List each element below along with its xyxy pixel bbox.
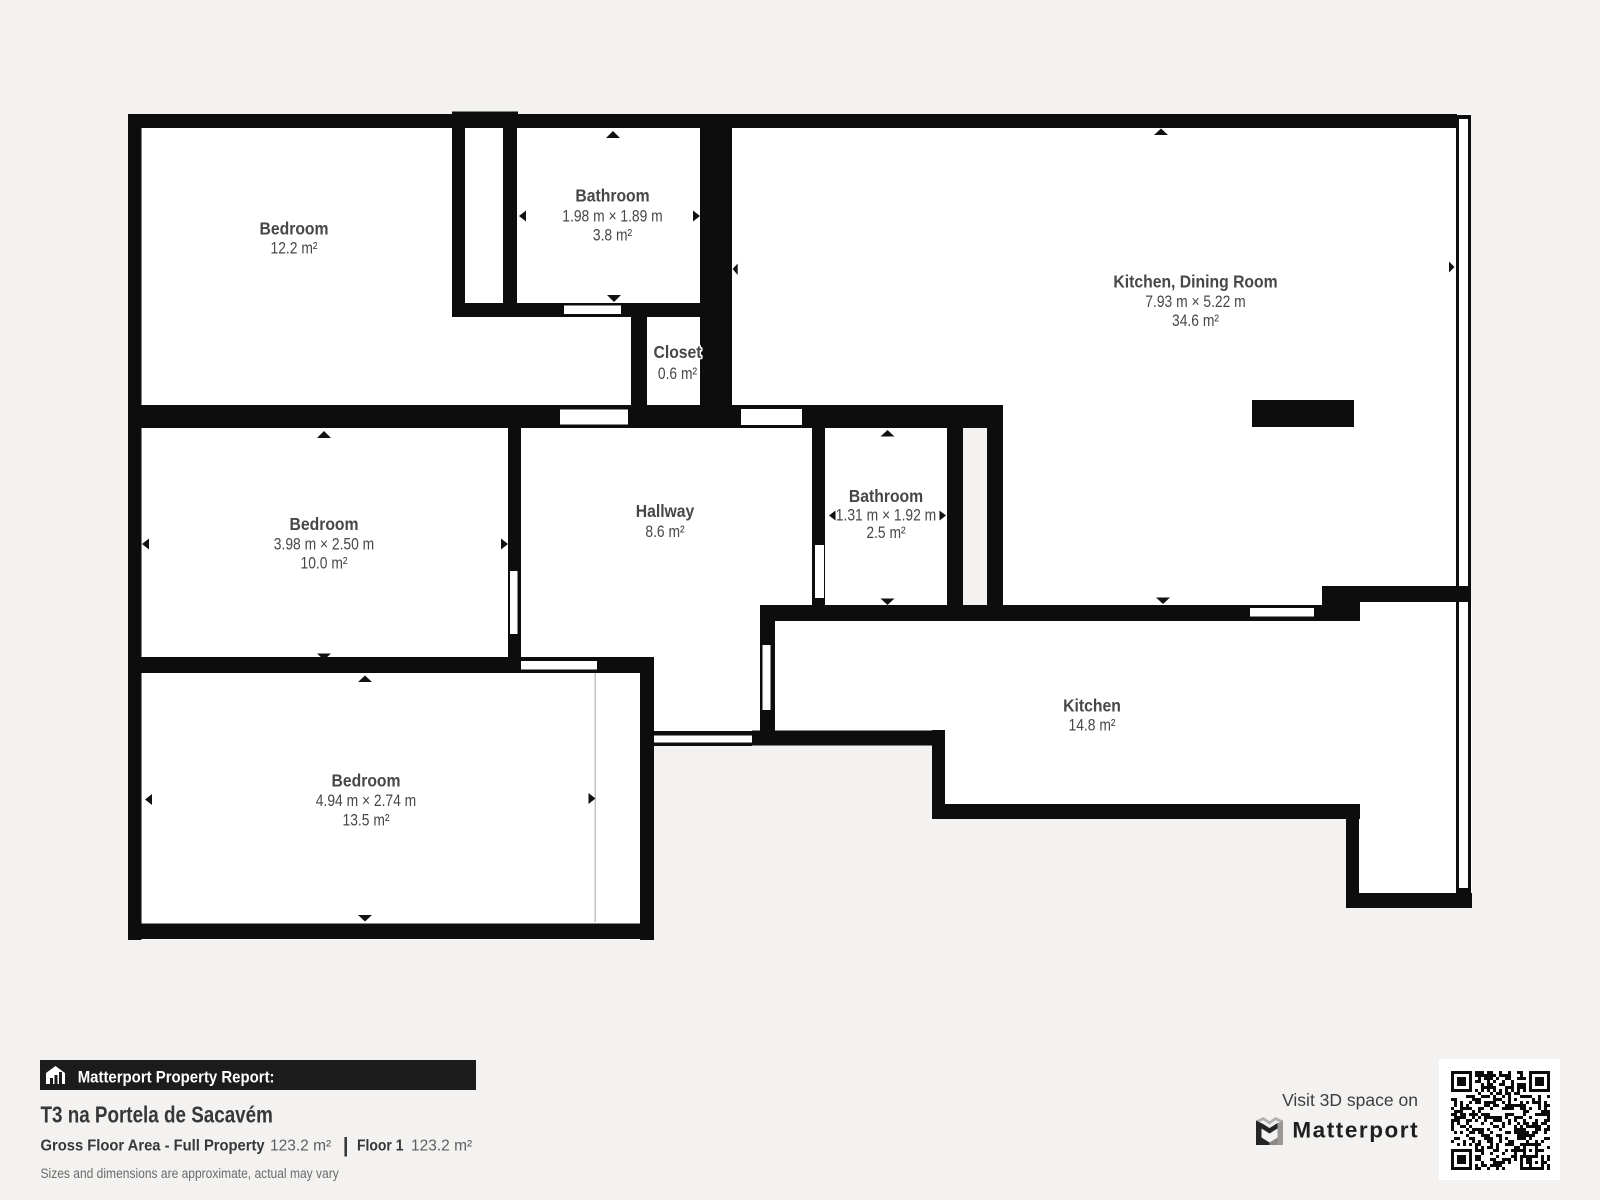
svg-text:1.31 m × 1.92 m: 1.31 m × 1.92 m — [836, 507, 936, 525]
svg-text:Bedroom: Bedroom — [259, 219, 328, 239]
svg-text:14.8 m²: 14.8 m² — [1069, 716, 1116, 734]
svg-text:7.93 m × 5.22 m: 7.93 m × 5.22 m — [1145, 293, 1245, 311]
svg-text:2.5 m²: 2.5 m² — [866, 524, 905, 542]
svg-text:Visit 3D space on: Visit 3D space on — [1282, 1090, 1418, 1110]
svg-text:123.2 m²: 123.2 m² — [270, 1138, 331, 1155]
svg-text:T3 na Portela de Sacavém: T3 na Portela de Sacavém — [41, 1103, 273, 1128]
svg-text:Bedroom: Bedroom — [289, 514, 358, 534]
svg-text:Matterport: Matterport — [1292, 1118, 1419, 1143]
svg-text:Bathroom: Bathroom — [575, 186, 649, 206]
svg-text:Kitchen: Kitchen — [1063, 696, 1121, 716]
svg-text:3.8 m²: 3.8 m² — [593, 226, 632, 244]
svg-text:Bathroom: Bathroom — [849, 486, 923, 506]
svg-text:Matterport Property Report:: Matterport Property Report: — [78, 1069, 275, 1087]
svg-text:Kitchen, Dining Room: Kitchen, Dining Room — [1113, 272, 1277, 292]
svg-text:123.2 m²: 123.2 m² — [411, 1138, 472, 1155]
svg-text:12.2 m²: 12.2 m² — [271, 239, 318, 257]
svg-text:4.94 m × 2.74 m: 4.94 m × 2.74 m — [316, 792, 416, 810]
svg-text:10.0 m²: 10.0 m² — [301, 554, 348, 572]
svg-text:0.6 m²: 0.6 m² — [658, 365, 697, 383]
svg-text:Closet: Closet — [653, 342, 702, 362]
svg-text:Sizes and dimensions are appro: Sizes and dimensions are approximate, ac… — [41, 1165, 340, 1181]
svg-text:1.98 m × 1.89 m: 1.98 m × 1.89 m — [562, 207, 662, 225]
svg-text:Hallway: Hallway — [636, 501, 695, 521]
svg-text:Bedroom: Bedroom — [331, 771, 400, 791]
svg-text:3.98 m × 2.50 m: 3.98 m × 2.50 m — [274, 535, 374, 553]
svg-text:8.6 m²: 8.6 m² — [645, 523, 684, 541]
svg-text:Floor 1: Floor 1 — [357, 1138, 403, 1155]
svg-text:Gross Floor Area - Full Proper: Gross Floor Area - Full Property — [41, 1137, 266, 1154]
svg-text:34.6 m²: 34.6 m² — [1172, 312, 1219, 330]
svg-text:13.5 m²: 13.5 m² — [343, 811, 390, 829]
